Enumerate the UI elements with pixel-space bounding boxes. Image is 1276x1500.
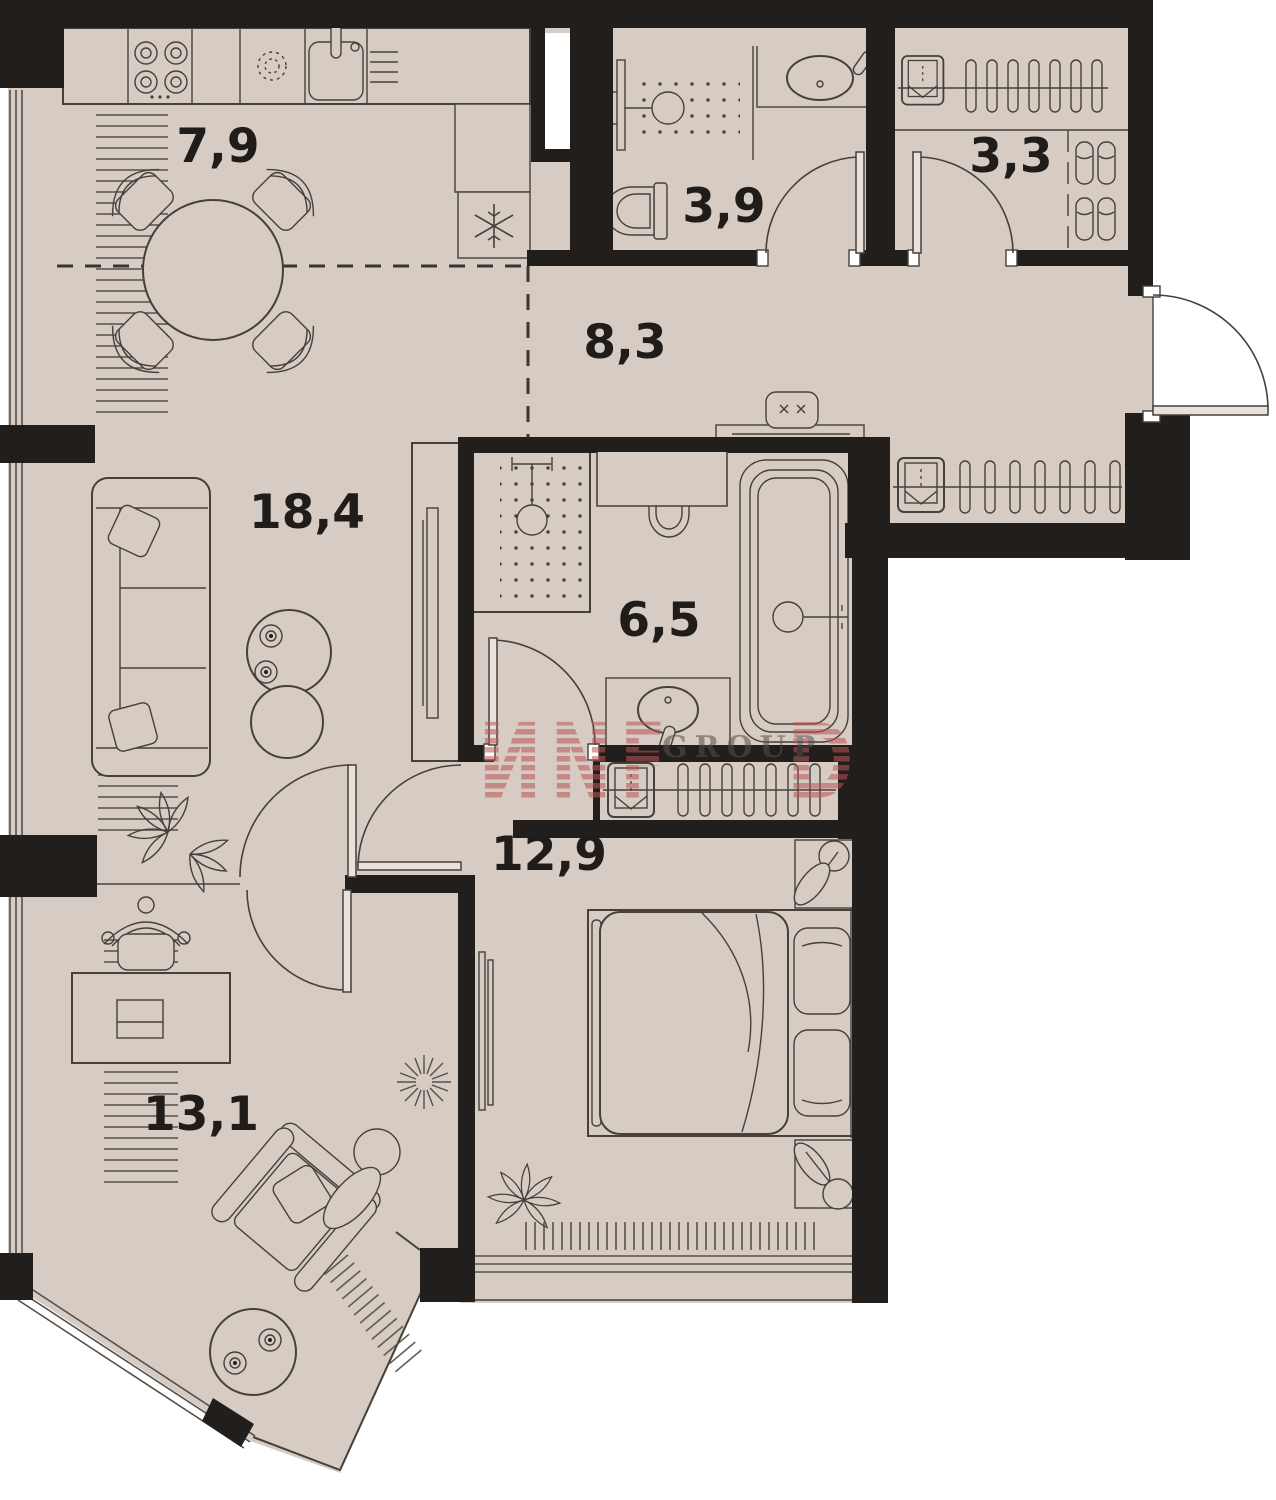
- room-label-study: 13,1: [143, 1087, 259, 1142]
- desk: [72, 973, 230, 1063]
- room-label-bedroom: 12,9: [491, 827, 607, 882]
- tall-cabinet: [455, 104, 530, 192]
- room-label-wardrobe: 3,3: [969, 129, 1052, 184]
- sofa-symbol: [92, 478, 210, 776]
- room-label-bathroom: 3,9: [682, 179, 765, 234]
- washbasin-icon: [757, 45, 875, 107]
- pillow: [794, 928, 850, 1014]
- shower-head-icon: [517, 505, 547, 535]
- watermark-letter-f: F: [620, 701, 666, 823]
- lamp-icon: [823, 1179, 853, 1209]
- nightstand: [788, 1138, 857, 1209]
- shower-glass: [617, 60, 625, 150]
- shower-head-icon: [652, 92, 684, 124]
- watermark-letter-n: N: [550, 701, 612, 823]
- floorplan-image: 7,9 3,9 3,3 8,3 18,4 6,5 12,9 13,1 И N F…: [0, 0, 1276, 1500]
- side-table: [210, 1309, 296, 1395]
- toilet-niche: [597, 452, 727, 506]
- watermark-glyph-left: И: [478, 701, 542, 823]
- room-label-living-room: 18,4: [249, 485, 365, 540]
- watermark-group-text: GROUP: [662, 730, 822, 765]
- nightstand: [788, 840, 857, 910]
- floorplan-page: 7,9 3,9 3,3 8,3 18,4 6,5 12,9 13,1 И N F…: [0, 0, 1276, 1500]
- room-label-kitchen-dining: 7,9: [176, 119, 259, 174]
- fridge-icon: [458, 192, 530, 258]
- room-label-hallway: 8,3: [583, 315, 666, 370]
- kitchen-counter: [63, 28, 530, 104]
- bed-symbol: [588, 908, 856, 1138]
- radiator-bedroom: [518, 1222, 818, 1250]
- entrance-door: [1143, 286, 1268, 422]
- room-label-bathroom-main: 6,5: [617, 593, 700, 648]
- bathtub-icon: [740, 460, 848, 742]
